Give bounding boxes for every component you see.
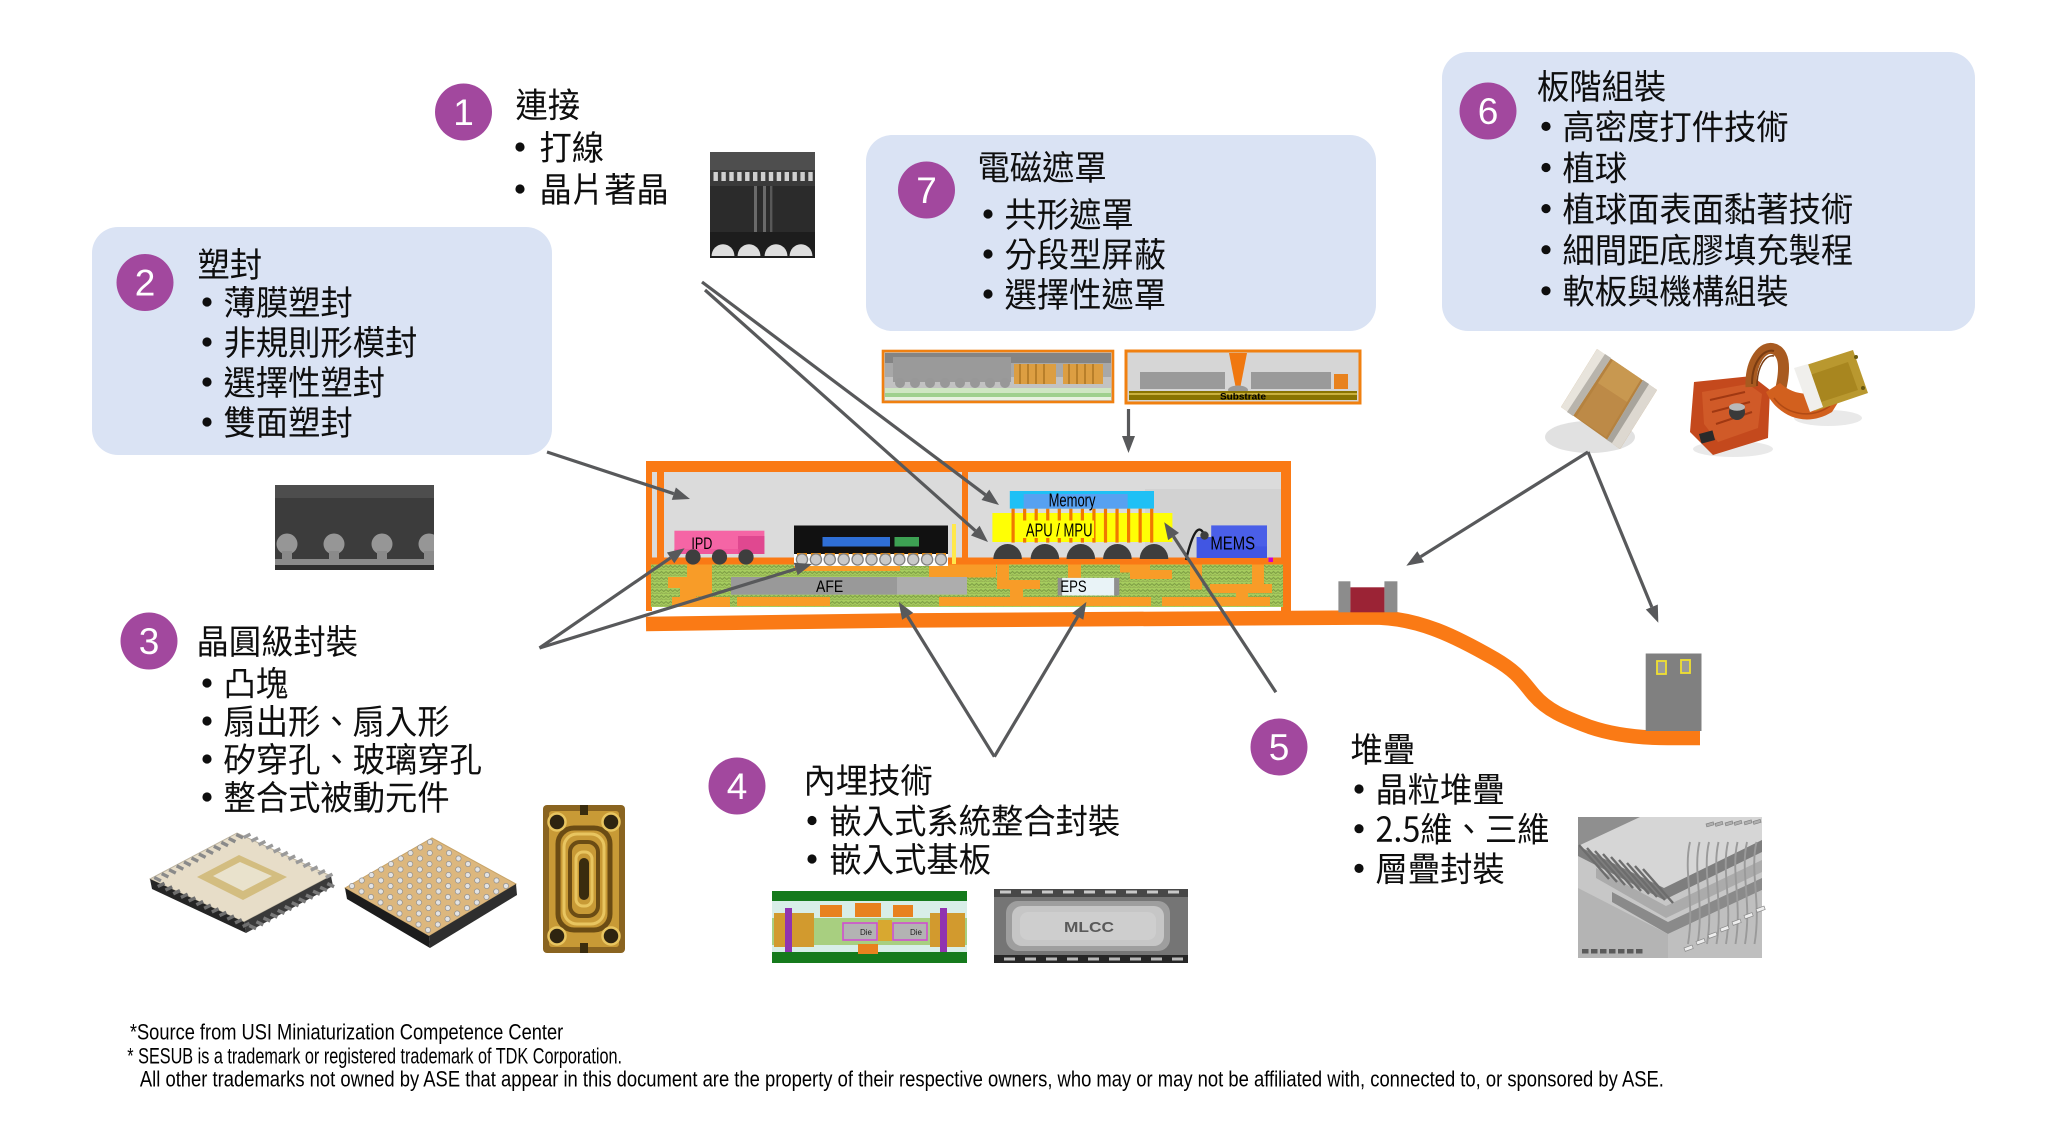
- svg-text:MLCC: MLCC: [1064, 919, 1114, 936]
- svg-text:5: 5: [1269, 727, 1290, 768]
- svg-text:Memory: Memory: [1049, 490, 1096, 510]
- svg-text:2: 2: [135, 263, 156, 304]
- svg-text:AFE: AFE: [816, 578, 843, 596]
- svg-text:APU / MPU: APU / MPU: [1026, 520, 1093, 540]
- svg-text:4: 4: [727, 766, 748, 807]
- svg-text:3: 3: [139, 621, 160, 662]
- svg-text:All other trademarks not owned: All other trademarks not owned by ASE th…: [140, 1067, 1664, 1092]
- svg-text:Die: Die: [860, 928, 873, 937]
- svg-text:EPS: EPS: [1060, 578, 1086, 596]
- svg-text:1: 1: [453, 92, 474, 133]
- svg-text:7: 7: [916, 170, 937, 211]
- svg-text:MEMS: MEMS: [1210, 534, 1255, 554]
- svg-text:Substrate: Substrate: [1220, 392, 1266, 403]
- svg-text:Die: Die: [910, 928, 923, 937]
- svg-text:* SESUB is a trademark or regi: * SESUB is a trademark or registered tra…: [127, 1044, 622, 1069]
- svg-text:*Source from USI Miniaturizati: *Source from USI Miniaturization Compete…: [130, 1020, 564, 1045]
- svg-text:6: 6: [1478, 91, 1499, 132]
